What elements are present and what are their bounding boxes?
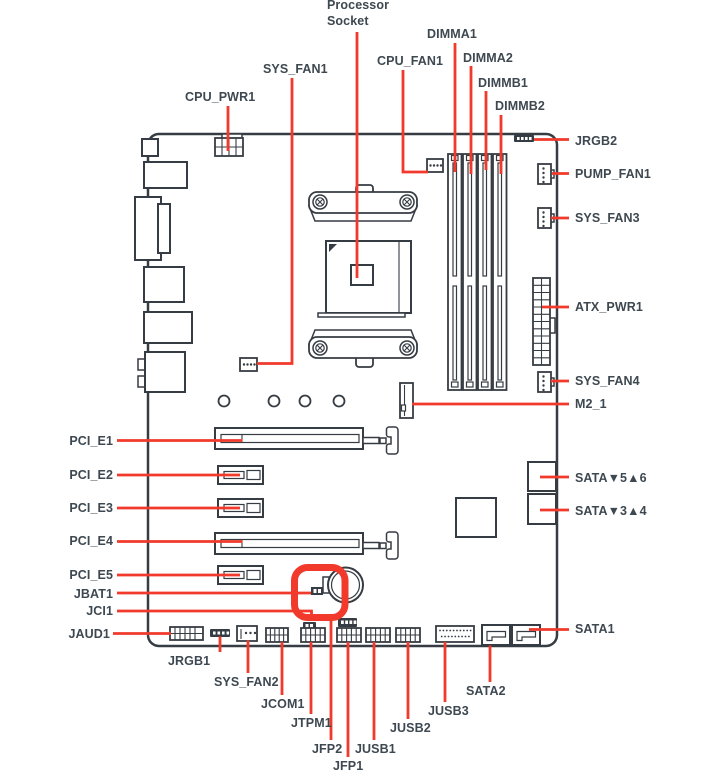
jusb3-connector	[436, 626, 474, 642]
sys-fan2-connector	[237, 626, 257, 641]
jbat1-jumper	[311, 587, 323, 595]
screw-icon	[400, 341, 414, 355]
label-jcom1: JCOM1	[261, 697, 305, 713]
label-processor-socket: Processor Socket	[327, 0, 389, 29]
sata-connectors-right	[528, 462, 556, 524]
cpu-fan1-connector	[427, 159, 443, 172]
label-sys-fan2: SYS_FAN2	[214, 675, 279, 691]
jrgb1-connector	[210, 629, 230, 637]
label-pci-e1: PCI_E1	[69, 434, 113, 450]
cpu-socket-area	[309, 185, 417, 367]
chipset	[456, 498, 496, 537]
sata2-connector	[482, 625, 510, 645]
label-sys-fan3: SYS_FAN3	[575, 211, 640, 227]
label-dimmb2: DIMMB2	[495, 99, 545, 115]
label-dimma1: DIMMA1	[427, 27, 477, 43]
jfp2-connector	[338, 618, 357, 627]
jcom1-connector	[266, 628, 288, 642]
label-dimma2: DIMMA2	[463, 51, 513, 67]
label-jrgb1: JRGB1	[168, 654, 210, 670]
label-pci-e5: PCI_E5	[69, 568, 113, 584]
label-pci-e2: PCI_E2	[69, 468, 113, 484]
screw-icon	[313, 195, 327, 209]
m2-slot	[400, 383, 413, 418]
label-pump-fan1: PUMP_FAN1	[575, 167, 651, 183]
label-jusb1: JUSB1	[355, 742, 396, 758]
sys-fan1-connector	[240, 358, 257, 371]
label-pci-e4: PCI_E4	[69, 534, 113, 550]
label-sata-5-6: SATA▼5▲6	[575, 471, 647, 487]
audio-port	[145, 352, 185, 392]
motherboard-diagram: Processor Socket DIMMA1 DIMMA2 CPU_FAN1 …	[0, 0, 721, 777]
jtpm1-connector	[301, 628, 325, 642]
jusb2-connector	[396, 628, 420, 642]
jusb1-connector	[366, 628, 390, 642]
label-pci-e3: PCI_E3	[69, 501, 113, 517]
screw-icon	[313, 341, 327, 355]
jfp1-connector	[337, 628, 361, 642]
label-sata2: SATA2	[466, 684, 506, 700]
label-jfp1: JFP1	[333, 759, 363, 775]
jaud1-connector	[170, 627, 203, 640]
jrgb2-connector	[514, 135, 534, 142]
label-cpu-pwr1: CPU_PWR1	[185, 90, 255, 106]
label-sata-3-4: SATA▼3▲4	[575, 504, 647, 520]
sata1-connector	[512, 625, 540, 645]
dimm-slots	[448, 154, 507, 390]
label-m2-1: M2_1	[575, 397, 607, 413]
label-jci1: JCI1	[86, 604, 113, 620]
label-cpu-fan1: CPU_FAN1	[377, 54, 443, 70]
label-jusb2: JUSB2	[390, 721, 431, 737]
pump-fan1-connector	[538, 164, 554, 184]
label-jbat1: JBAT1	[74, 587, 113, 603]
label-jtpm1: JTPM1	[291, 716, 332, 732]
screw-icon	[400, 195, 414, 209]
label-atx-pwr1: ATX_PWR1	[575, 300, 643, 316]
label-sata1: SATA1	[575, 622, 615, 638]
label-jaud1: JAUD1	[69, 627, 111, 643]
label-jusb3: JUSB3	[428, 704, 469, 720]
label-dimmb1: DIMMB1	[478, 76, 528, 92]
label-sys-fan4: SYS_FAN4	[575, 374, 640, 390]
label-sys-fan1: SYS_FAN1	[263, 62, 328, 78]
label-jfp2: JFP2	[312, 742, 342, 758]
label-jrgb2: JRGB2	[575, 134, 617, 150]
